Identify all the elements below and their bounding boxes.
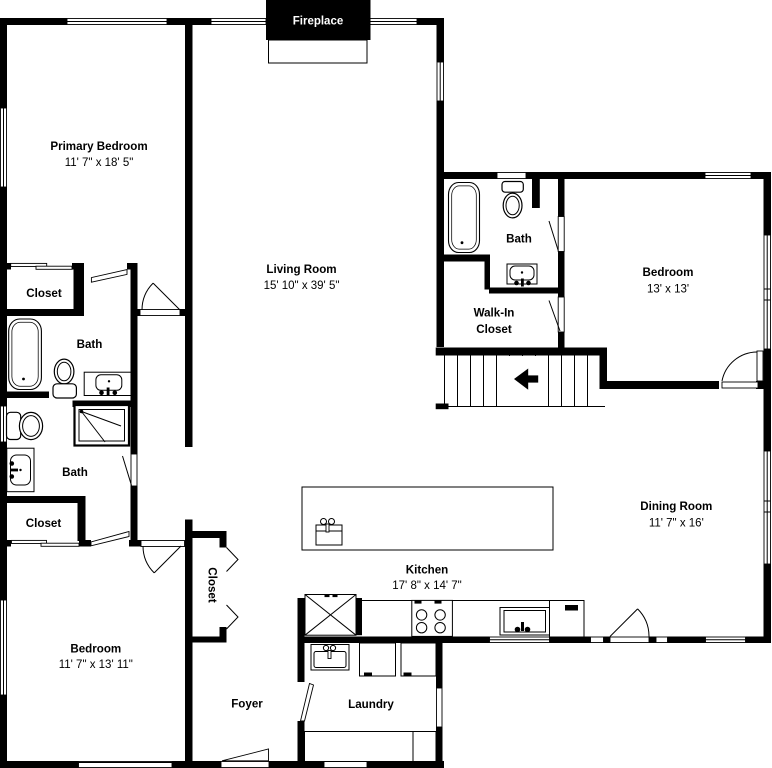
svg-text:13' x 13': 13' x 13': [647, 284, 689, 296]
svg-text:Living Room: Living Room: [266, 263, 336, 276]
svg-text:11' 7" x 13' 11": 11' 7" x 13' 11": [59, 659, 133, 671]
svg-text:17' 8" x 14' 7": 17' 8" x 14' 7": [392, 580, 461, 592]
svg-text:Bedroom: Bedroom: [70, 643, 121, 656]
svg-text:Closet: Closet: [26, 287, 62, 300]
svg-text:11' 7" x 16': 11' 7" x 16': [649, 518, 704, 530]
svg-text:Closet: Closet: [26, 517, 62, 530]
svg-text:Foyer: Foyer: [231, 698, 263, 711]
svg-text:15' 10" x 39' 5": 15' 10" x 39' 5": [264, 280, 340, 292]
svg-text:Bath: Bath: [77, 338, 103, 351]
svg-text:Bath: Bath: [506, 233, 532, 246]
svg-text:Closet: Closet: [206, 567, 219, 603]
svg-text:Walk-In: Walk-In: [474, 307, 515, 320]
svg-text:11' 7" x 18' 5": 11' 7" x 18' 5": [65, 157, 134, 169]
svg-text:Kitchen: Kitchen: [406, 564, 449, 577]
svg-text:Primary Bedroom: Primary Bedroom: [50, 140, 147, 153]
svg-text:Bath: Bath: [62, 466, 88, 479]
svg-text:Bedroom: Bedroom: [643, 266, 694, 279]
svg-text:Fireplace: Fireplace: [293, 16, 344, 28]
svg-text:Closet: Closet: [476, 323, 512, 336]
svg-text:Laundry: Laundry: [348, 698, 394, 711]
svg-text:Dining Room: Dining Room: [640, 500, 712, 513]
